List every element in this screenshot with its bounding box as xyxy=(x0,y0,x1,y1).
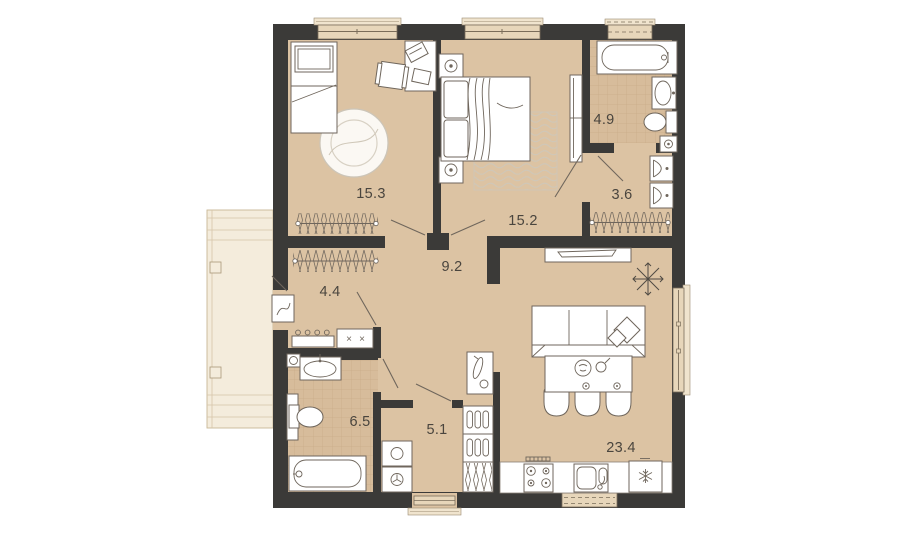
window-bedroom1 xyxy=(314,18,401,39)
water-heater xyxy=(287,354,300,367)
wardrobe-rail-entry xyxy=(293,250,378,272)
washbasin xyxy=(300,354,341,380)
wall-bath-bottom-left xyxy=(582,143,614,153)
shoe-cabinet: × × xyxy=(337,329,373,348)
room-label-bedroom1: 15.3 xyxy=(356,186,385,202)
desk-chair xyxy=(375,61,409,90)
console-cabinet xyxy=(272,295,294,322)
wall-corridor-stub xyxy=(452,400,463,408)
wardrobe-rail-bedroom1 xyxy=(296,213,378,234)
bathtub xyxy=(289,456,366,491)
room-label-wardrobe-room: 3.6 xyxy=(611,187,632,203)
bed-double xyxy=(441,77,530,161)
dryer xyxy=(650,183,673,208)
balcony xyxy=(207,210,273,428)
room-label-hallway: 9.2 xyxy=(441,259,462,275)
storage-shelf xyxy=(463,462,493,492)
wall-hall-top-right xyxy=(487,236,672,248)
washer xyxy=(650,156,673,181)
wall-hall-top-left xyxy=(288,236,385,248)
room-label-bedroom2: 15.2 xyxy=(508,213,537,229)
wall-washer-niche xyxy=(378,400,413,408)
cabinet-mark: × xyxy=(359,334,365,345)
wall-bedroom2-bath xyxy=(582,40,590,152)
washbasin xyxy=(652,77,676,109)
cabinet-mark: × xyxy=(346,334,352,345)
wardrobe-rail-wardrobe-room xyxy=(590,212,670,233)
room-label-living-kitchen: 23.4 xyxy=(606,440,635,456)
wardrobe-cabinet xyxy=(570,75,582,162)
wall-stub xyxy=(582,202,590,236)
desk xyxy=(405,41,436,91)
washer xyxy=(382,441,412,466)
shoe-rack xyxy=(463,406,493,434)
window-bedroom2 xyxy=(462,18,543,39)
wall-left xyxy=(273,24,288,508)
kitchen-sink xyxy=(574,464,608,492)
floor-drain-unit xyxy=(660,136,677,152)
wall-corridor-living xyxy=(493,372,500,493)
dining-table xyxy=(545,356,632,392)
toilet xyxy=(644,111,677,133)
floor-plan: × × xyxy=(0,0,900,534)
wall-bottom xyxy=(273,492,685,508)
shoe-rack xyxy=(463,434,493,462)
window-bathroom-main xyxy=(605,19,655,39)
sofa xyxy=(532,306,645,357)
fridge xyxy=(629,459,662,493)
wall-pillar xyxy=(427,233,449,250)
tv-stand xyxy=(545,248,631,262)
bathtub xyxy=(597,41,677,74)
floor-plan-page: × × xyxy=(0,0,900,534)
window-living xyxy=(673,285,690,395)
entrance-door xyxy=(408,493,461,515)
plant xyxy=(633,263,663,295)
vacuum-closet xyxy=(467,352,493,394)
wall-hall-living-upper xyxy=(487,248,500,284)
room-label-bathroom-main: 4.9 xyxy=(593,112,614,128)
room-label-corridor: 5.1 xyxy=(426,422,447,438)
room-label-bathroom-second: 6.5 xyxy=(349,414,370,430)
dryer xyxy=(382,467,412,492)
room-label-entry: 4.4 xyxy=(319,284,340,300)
nightstand xyxy=(439,54,463,78)
window-kitchen xyxy=(562,493,617,507)
bed-single xyxy=(291,42,337,133)
